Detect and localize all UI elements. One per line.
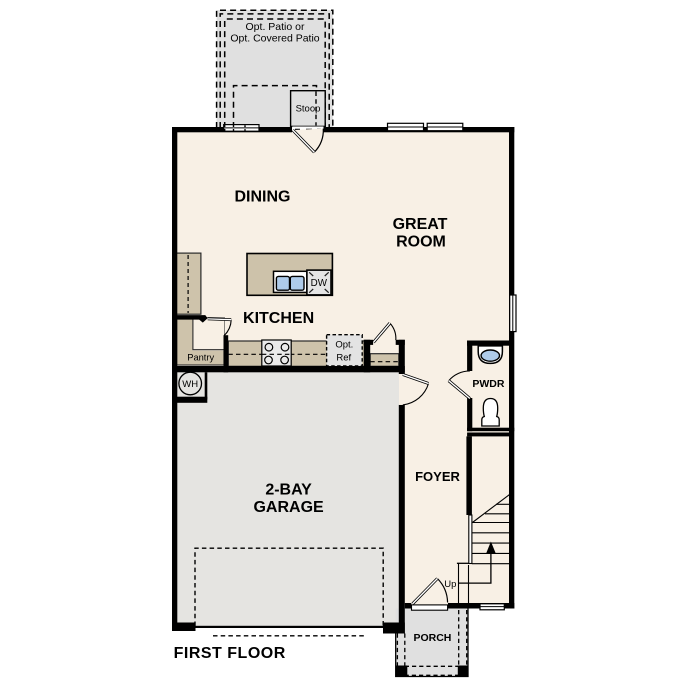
svg-text:Stoop: Stoop bbox=[296, 103, 321, 114]
svg-text:ROOM: ROOM bbox=[396, 233, 446, 250]
svg-text:KITCHEN: KITCHEN bbox=[243, 310, 314, 327]
svg-text:GREAT: GREAT bbox=[393, 216, 448, 233]
svg-text:FIRST FLOOR: FIRST FLOOR bbox=[174, 645, 286, 662]
svg-text:Ref: Ref bbox=[336, 352, 351, 363]
svg-text:WH: WH bbox=[182, 379, 198, 390]
svg-text:DW: DW bbox=[311, 278, 328, 289]
svg-text:FOYER: FOYER bbox=[415, 469, 460, 484]
svg-text:Opt.: Opt. bbox=[335, 340, 353, 351]
svg-text:DINING: DINING bbox=[235, 189, 291, 206]
svg-text:PORCH: PORCH bbox=[413, 632, 451, 644]
svg-text:PWDR: PWDR bbox=[472, 378, 504, 390]
svg-text:Opt. Covered Patio: Opt. Covered Patio bbox=[230, 33, 319, 45]
svg-text:2-BAY: 2-BAY bbox=[265, 482, 312, 499]
svg-text:GARAGE: GARAGE bbox=[253, 499, 324, 516]
svg-text:Pantry: Pantry bbox=[187, 352, 214, 362]
svg-text:Opt. Patio or: Opt. Patio or bbox=[246, 21, 305, 33]
svg-text:Up: Up bbox=[444, 579, 456, 590]
